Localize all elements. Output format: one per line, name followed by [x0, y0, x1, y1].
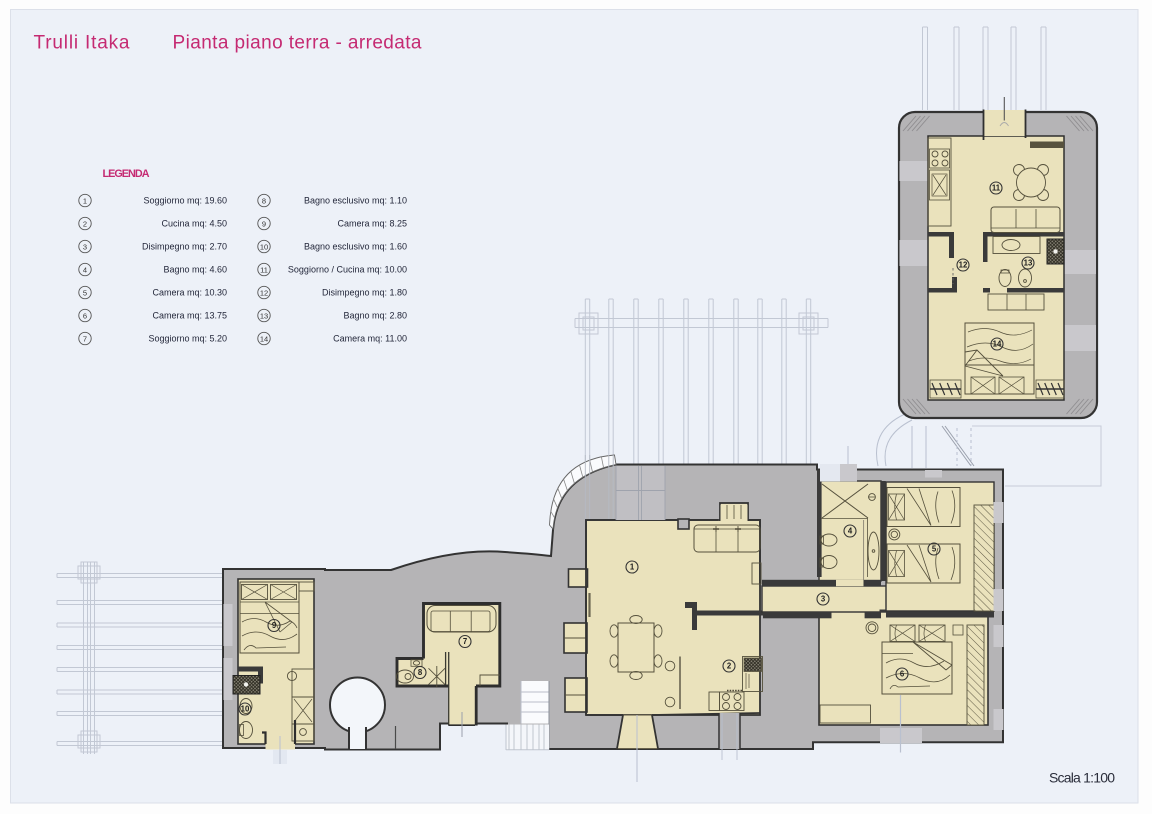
svg-text:12: 12: [260, 288, 268, 297]
svg-text:Cucina mq: 4.50: Cucina mq: 4.50: [161, 219, 227, 229]
svg-text:Bagno mq: 2.80: Bagno mq: 2.80: [343, 311, 407, 321]
svg-text:Soggiorno mq: 5.20: Soggiorno mq: 5.20: [148, 334, 227, 344]
svg-text:7: 7: [463, 637, 467, 646]
svg-text:10: 10: [260, 242, 268, 251]
svg-text:Bagno esclusivo mq: 1.10: Bagno esclusivo mq: 1.10: [304, 196, 407, 206]
svg-text:Disimpegno mq: 2.70: Disimpegno mq: 2.70: [142, 242, 227, 252]
svg-text:Camera mq: 13.75: Camera mq: 13.75: [152, 311, 227, 321]
svg-text:9: 9: [272, 621, 277, 630]
svg-text:Trulli Itaka: Trulli Itaka: [34, 33, 130, 54]
svg-text:1: 1: [83, 196, 87, 205]
svg-text:Scala 1:100: Scala 1:100: [1049, 770, 1115, 786]
svg-text:Camera mq: 11.00: Camera mq: 11.00: [333, 334, 407, 344]
svg-text:Camera mq: 10.30: Camera mq: 10.30: [152, 288, 227, 298]
svg-text:Pianta piano terra - arredata: Pianta piano terra - arredata: [173, 33, 422, 54]
svg-text:8: 8: [262, 196, 266, 205]
svg-text:2: 2: [83, 219, 87, 228]
svg-text:3: 3: [821, 595, 826, 604]
svg-text:4: 4: [83, 265, 87, 274]
svg-text:8: 8: [418, 668, 423, 677]
svg-text:13: 13: [1024, 259, 1033, 268]
svg-text:6: 6: [83, 311, 87, 320]
svg-text:9: 9: [262, 219, 266, 228]
svg-text:7: 7: [83, 334, 87, 343]
svg-text:2: 2: [727, 662, 732, 671]
svg-text:Soggiorno mq: 19.60: Soggiorno mq: 19.60: [143, 196, 227, 206]
svg-text:5: 5: [83, 288, 87, 297]
svg-text:1: 1: [630, 563, 635, 572]
svg-text:11: 11: [992, 184, 1001, 193]
svg-text:Bagno esclusivo mq: 1.60: Bagno esclusivo mq: 1.60: [304, 242, 407, 252]
svg-text:Bagno mq: 4.60: Bagno mq: 4.60: [163, 265, 227, 275]
svg-text:14: 14: [993, 340, 1002, 349]
svg-text:12: 12: [959, 261, 968, 270]
svg-text:6: 6: [900, 670, 905, 679]
svg-text:11: 11: [260, 265, 268, 274]
svg-text:LEGENDA: LEGENDA: [103, 168, 150, 180]
svg-text:13: 13: [260, 311, 268, 320]
svg-text:Disimpegno mq: 1.80: Disimpegno mq: 1.80: [322, 288, 407, 298]
svg-text:Camera mq: 8.25: Camera mq: 8.25: [337, 219, 407, 229]
svg-text:5: 5: [932, 545, 937, 554]
svg-text:10: 10: [241, 705, 250, 714]
svg-text:4: 4: [848, 527, 853, 536]
svg-text:14: 14: [260, 334, 268, 343]
svg-text:3: 3: [83, 242, 87, 251]
svg-text:Soggiorno / Cucina mq: 10.00: Soggiorno / Cucina mq: 10.00: [288, 265, 407, 275]
